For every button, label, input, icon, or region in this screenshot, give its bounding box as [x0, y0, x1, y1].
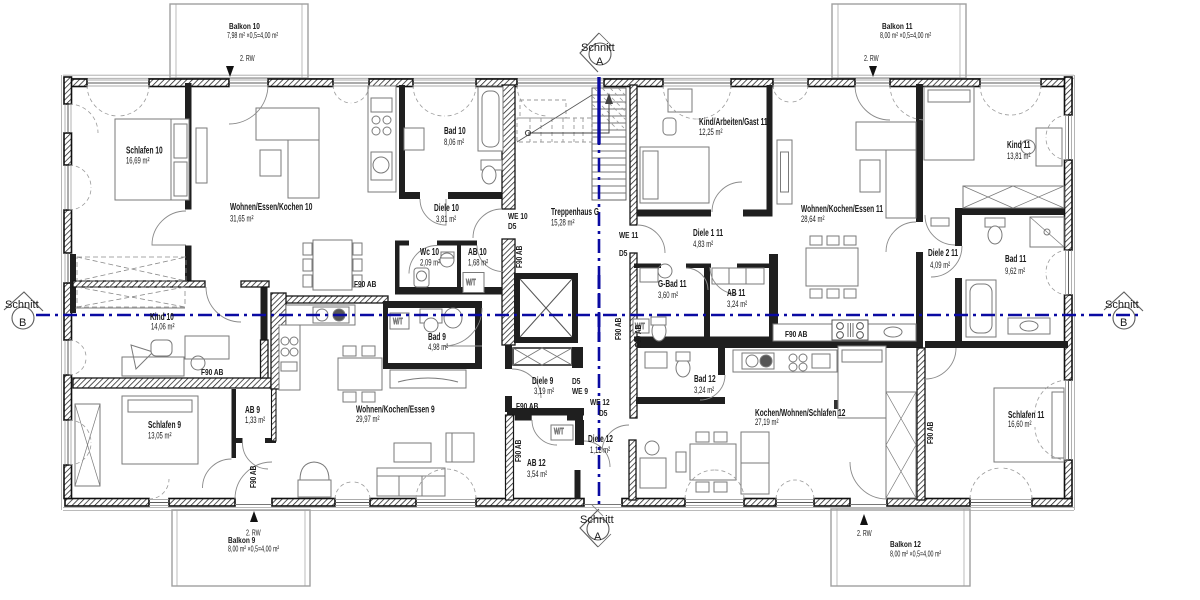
svg-text:16,69 m²: 16,69 m² [126, 155, 150, 166]
svg-text:29,97 m²: 29,97 m² [356, 414, 380, 425]
svg-text:WE 10: WE 10 [508, 211, 528, 221]
svg-text:Bad 9: Bad 9 [428, 331, 446, 343]
svg-text:Diele 2 11: Diele 2 11 [928, 247, 958, 259]
svg-text:W/T: W/T [393, 317, 403, 327]
svg-text:F90 AB: F90 AB [516, 401, 539, 411]
svg-text:Schlafen 10: Schlafen 10 [126, 144, 163, 156]
svg-text:Balkon 11: Balkon 11 [882, 21, 913, 31]
svg-text:31,65 m²: 31,65 m² [230, 213, 254, 224]
svg-text:2. RW: 2. RW [240, 54, 255, 64]
svg-text:8,00 m² ×0,5=4,00 m²: 8,00 m² ×0,5=4,00 m² [880, 31, 932, 41]
svg-text:Diele 10: Diele 10 [434, 202, 459, 214]
svg-text:8,06 m²: 8,06 m² [444, 137, 464, 148]
svg-text:F90 AB: F90 AB [354, 279, 377, 289]
svg-text:F90 AB: F90 AB [925, 421, 935, 444]
svg-text:Wc 10: Wc 10 [420, 246, 439, 258]
svg-text:B: B [1120, 317, 1127, 329]
svg-text:9,62 m²: 9,62 m² [1005, 266, 1025, 277]
svg-text:Treppenhaus G: Treppenhaus G [551, 206, 599, 218]
svg-text:4,83 m²: 4,83 m² [693, 239, 713, 250]
svg-text:13,05 m²: 13,05 m² [148, 430, 172, 441]
svg-text:3,19 m²: 3,19 m² [534, 386, 554, 397]
svg-text:1,33 m²: 1,33 m² [245, 415, 265, 426]
svg-text:3,81 m²: 3,81 m² [436, 214, 456, 225]
svg-text:27,19 m²: 27,19 m² [755, 417, 779, 428]
svg-text:2. RW: 2. RW [864, 54, 879, 64]
svg-text:Bad 10: Bad 10 [444, 125, 466, 137]
svg-text:G-Bad 11: G-Bad 11 [658, 278, 687, 290]
svg-text:A: A [596, 56, 604, 68]
svg-text:Kind/Arbeiten/Gast 11: Kind/Arbeiten/Gast 11 [699, 116, 768, 128]
svg-text:4,09 m²: 4,09 m² [930, 260, 950, 271]
svg-text:13,81 m²: 13,81 m² [1007, 151, 1031, 162]
svg-text:F90 AB: F90 AB [613, 317, 623, 340]
svg-text:D5: D5 [619, 248, 627, 258]
svg-text:Schlafen 9: Schlafen 9 [148, 419, 181, 431]
svg-text:Diele 1 11: Diele 1 11 [693, 227, 723, 239]
svg-text:F90 AB: F90 AB [248, 465, 258, 488]
svg-text:D5: D5 [599, 408, 607, 418]
svg-text:8,00 m² ×0,5=4,00 m²: 8,00 m² ×0,5=4,00 m² [890, 549, 942, 559]
svg-text:2. RW: 2. RW [246, 528, 261, 538]
svg-text:F90 AB: F90 AB [514, 245, 524, 268]
svg-text:WE 9: WE 9 [572, 386, 588, 396]
svg-text:W/T: W/T [466, 278, 476, 288]
svg-text:Schnitt: Schnitt [581, 42, 615, 54]
svg-text:1,68 m²: 1,68 m² [468, 257, 488, 268]
svg-text:Diele 12: Diele 12 [588, 433, 613, 445]
svg-text:AB 11: AB 11 [727, 287, 746, 299]
svg-text:3,24 m²: 3,24 m² [694, 385, 714, 396]
svg-text:AB 10: AB 10 [468, 246, 487, 258]
svg-text:14,06 m²: 14,06 m² [151, 321, 175, 332]
svg-text:2,09 m²: 2,09 m² [420, 257, 440, 268]
svg-text:3,60 m²: 3,60 m² [658, 290, 678, 301]
svg-text:12,25 m²: 12,25 m² [699, 127, 723, 138]
svg-text:3,54 m²: 3,54 m² [527, 469, 547, 480]
svg-text:F90 AB: F90 AB [513, 439, 523, 462]
svg-text:D5: D5 [508, 221, 516, 231]
svg-text:D5: D5 [572, 376, 580, 386]
svg-text:F90 AB: F90 AB [201, 367, 224, 377]
svg-text:4,98 m²: 4,98 m² [428, 342, 448, 353]
svg-text:F90 AB: F90 AB [785, 329, 808, 339]
svg-text:F90 AB: F90 AB [633, 324, 643, 347]
svg-text:Wohnen/Kochen/Essen 11: Wohnen/Kochen/Essen 11 [801, 203, 883, 215]
svg-text:W/T: W/T [554, 427, 564, 437]
svg-text:16,60 m²: 16,60 m² [1008, 419, 1032, 430]
svg-text:WE 12: WE 12 [590, 397, 610, 407]
svg-text:Schnitt: Schnitt [1105, 299, 1139, 311]
svg-text:8,00 m² ×0,5=4,00 m²: 8,00 m² ×0,5=4,00 m² [228, 544, 280, 554]
svg-text:Balkon 12: Balkon 12 [890, 539, 921, 549]
svg-text:Balkon 10: Balkon 10 [229, 21, 260, 31]
svg-text:AB 12: AB 12 [527, 457, 546, 469]
svg-text:Bad 11: Bad 11 [1005, 253, 1026, 265]
svg-text:AB 9: AB 9 [245, 404, 260, 416]
svg-text:28,64 m²: 28,64 m² [801, 214, 825, 225]
svg-text:3,24 m²: 3,24 m² [727, 299, 747, 310]
svg-text:Schnitt: Schnitt [5, 299, 39, 311]
svg-text:7,98 m² ×0,5=4,00 m²: 7,98 m² ×0,5=4,00 m² [227, 31, 279, 41]
svg-text:Bad 12: Bad 12 [694, 373, 716, 385]
svg-text:B: B [19, 317, 26, 329]
svg-text:Schnitt: Schnitt [580, 514, 614, 526]
svg-text:2. RW: 2. RW [857, 529, 872, 539]
svg-text:15,28 m²: 15,28 m² [551, 217, 575, 228]
svg-text:1,12 m²: 1,12 m² [590, 445, 610, 456]
svg-text:WE 11: WE 11 [619, 230, 638, 240]
svg-text:Diele 9: Diele 9 [532, 375, 553, 387]
svg-text:Wohnen/Essen/Kochen 10: Wohnen/Essen/Kochen 10 [230, 201, 313, 213]
svg-text:A: A [594, 531, 602, 543]
svg-text:Kind 11: Kind 11 [1007, 139, 1031, 151]
